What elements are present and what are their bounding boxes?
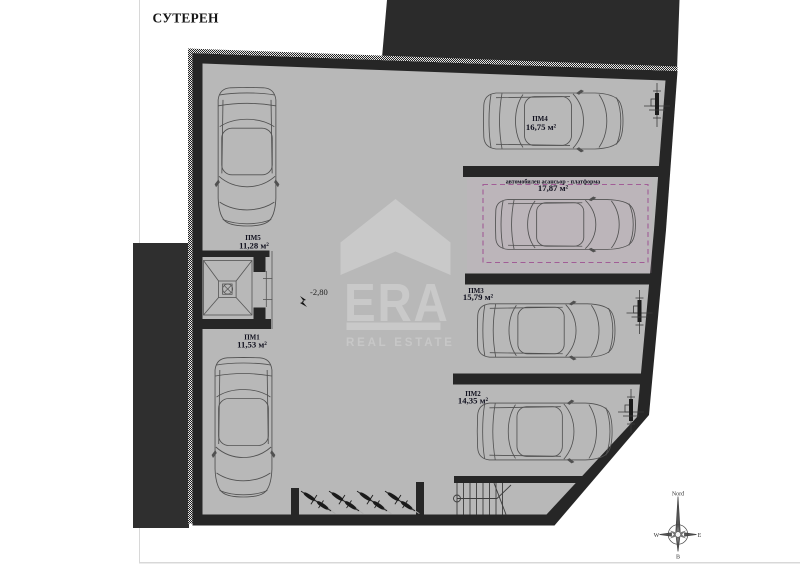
svg-text:-2,80: -2,80 <box>310 287 328 297</box>
svg-text:17,87 м²: 17,87 м² <box>538 183 569 193</box>
svg-text:REAL ESTATE: REAL ESTATE <box>346 337 455 349</box>
svg-text:11,53 м²: 11,53 м² <box>237 340 267 350</box>
svg-text:Nord: Nord <box>672 492 684 498</box>
svg-text:16,75 м²: 16,75 м² <box>526 122 557 132</box>
svg-text:СУТЕРЕН: СУТЕРЕН <box>153 11 219 26</box>
svg-text:E: E <box>698 533 702 539</box>
svg-text:11,28 м²: 11,28 м² <box>239 241 269 251</box>
svg-text:14,35 м²: 14,35 м² <box>458 396 489 406</box>
svg-text:B: B <box>676 555 680 561</box>
svg-text:W: W <box>654 533 660 539</box>
svg-text:15,79 м²: 15,79 м² <box>463 292 494 302</box>
